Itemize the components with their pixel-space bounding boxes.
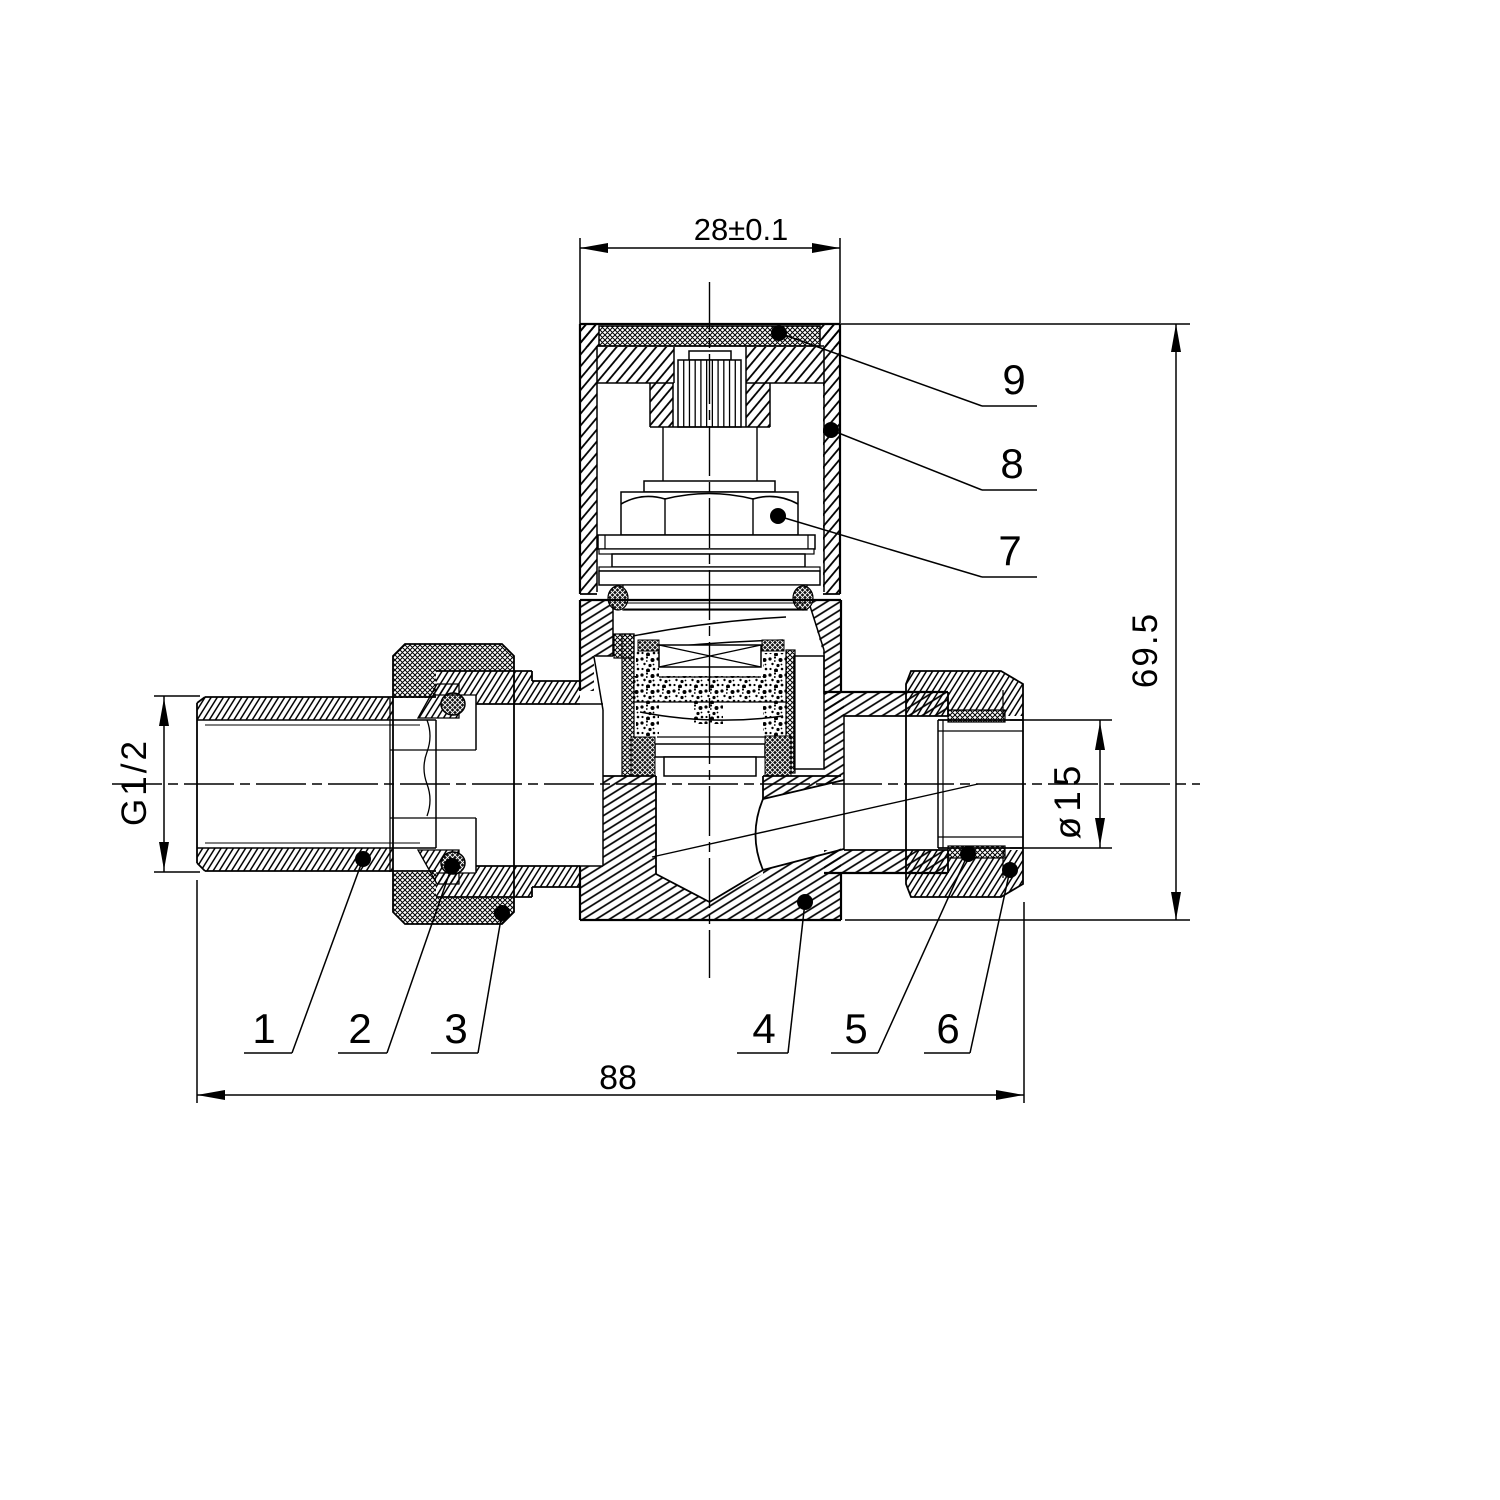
svg-text:ø15: ø15 — [1047, 761, 1088, 840]
svg-text:1: 1 — [252, 1005, 275, 1052]
svg-text:9: 9 — [1002, 356, 1025, 403]
svg-text:6: 6 — [936, 1005, 959, 1052]
svg-text:88: 88 — [599, 1059, 637, 1097]
svg-text:28±0.1: 28±0.1 — [694, 212, 789, 247]
svg-text:8: 8 — [1000, 440, 1023, 487]
svg-text:7: 7 — [998, 527, 1021, 574]
svg-text:69.5: 69.5 — [1126, 612, 1165, 688]
svg-text:5: 5 — [844, 1005, 867, 1052]
svg-text:2: 2 — [348, 1005, 371, 1052]
svg-text:4: 4 — [752, 1005, 775, 1052]
svg-text:G1/2: G1/2 — [115, 738, 154, 826]
svg-text:3: 3 — [444, 1005, 467, 1052]
